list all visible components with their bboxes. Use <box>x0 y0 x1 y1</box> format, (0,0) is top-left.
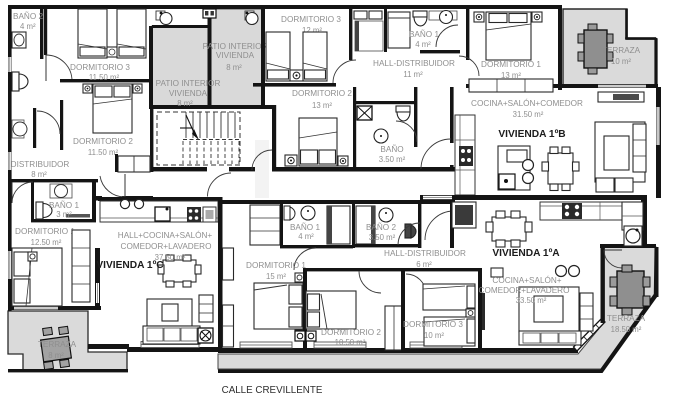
svg-text:3.50 m²: 3.50 m² <box>369 233 396 242</box>
svg-text:BAÑO 2: BAÑO 2 <box>366 222 396 232</box>
svg-text:TERRAZA: TERRAZA <box>38 340 77 349</box>
svg-text:BAÑO 1: BAÑO 1 <box>409 29 439 39</box>
svg-text:TERRAZA: TERRAZA <box>602 46 641 55</box>
svg-text:HALL+COCINA+SALÓN+: HALL+COCINA+SALÓN+ <box>118 230 213 240</box>
svg-text:COCINA+SALÓN+: COCINA+SALÓN+ <box>492 275 561 285</box>
svg-text:DORMITORIO 3: DORMITORIO 3 <box>281 15 341 24</box>
svg-text:11.50 m²: 11.50 m² <box>88 148 119 157</box>
svg-text:HALL-DISTRIBUIDOR: HALL-DISTRIBUIDOR <box>373 59 455 68</box>
svg-text:33.50 m²: 33.50 m² <box>516 296 547 305</box>
svg-text:6 m²: 6 m² <box>416 260 432 269</box>
svg-text:10.50 m²: 10.50 m² <box>335 338 366 347</box>
svg-text:DISTRIBUIDOR: DISTRIBUIDOR <box>11 160 70 169</box>
svg-text:8 m²: 8 m² <box>177 99 193 108</box>
svg-text:8 m²: 8 m² <box>48 351 64 360</box>
svg-text:10 m²: 10 m² <box>424 331 444 340</box>
svg-text:COMEDOR+LAVADERO: COMEDOR+LAVADERO <box>121 242 212 251</box>
svg-text:DORMITORIO 3: DORMITORIO 3 <box>70 63 130 72</box>
svg-text:BAÑO 2: BAÑO 2 <box>13 11 43 21</box>
svg-text:PATIO INTERIOR: PATIO INTERIOR <box>203 42 268 51</box>
svg-text:11.50 m²: 11.50 m² <box>89 73 120 82</box>
svg-text:BAÑO 1: BAÑO 1 <box>49 200 79 210</box>
svg-text:4 m²: 4 m² <box>415 40 431 49</box>
svg-text:COMEDOR+LAVADERO: COMEDOR+LAVADERO <box>479 286 570 295</box>
svg-text:DORMITORIO 1: DORMITORIO 1 <box>15 227 75 236</box>
svg-text:DORMITORIO 3: DORMITORIO 3 <box>403 320 463 329</box>
svg-text:DORMITORIO 2: DORMITORIO 2 <box>292 89 352 98</box>
svg-text:31.50 m²: 31.50 m² <box>513 110 544 119</box>
svg-text:CALLE CREVILLENTE: CALLE CREVILLENTE <box>222 385 323 396</box>
svg-text:4 m²: 4 m² <box>298 232 314 241</box>
svg-text:COCINA+SALÓN+COMEDOR: COCINA+SALÓN+COMEDOR <box>471 98 583 108</box>
svg-text:VIVIENDA: VIVIENDA <box>169 89 208 98</box>
svg-text:TERRAZA: TERRAZA <box>607 314 646 323</box>
svg-text:BAÑO: BAÑO <box>380 144 403 154</box>
svg-text:VIVIENDA: VIVIENDA <box>216 51 255 60</box>
svg-text:PATIO INTERIOR: PATIO INTERIOR <box>156 79 221 88</box>
svg-text:12.50 m²: 12.50 m² <box>31 238 62 247</box>
svg-text:VIVIENDA 1ºB: VIVIENDA 1ºB <box>498 129 565 140</box>
svg-text:18.50 m²: 18.50 m² <box>611 325 642 334</box>
svg-text:13 m²: 13 m² <box>312 101 332 110</box>
svg-text:BAÑO 1: BAÑO 1 <box>290 222 320 232</box>
svg-text:3 m²: 3 m² <box>56 210 72 219</box>
svg-text:VIVIENDA 1ºC: VIVIENDA 1ºC <box>96 260 164 271</box>
svg-text:VIVIENDA 1ºA: VIVIENDA 1ºA <box>492 248 560 259</box>
svg-text:10 m²: 10 m² <box>611 57 631 66</box>
svg-text:DORMITORIO 1: DORMITORIO 1 <box>246 261 306 270</box>
svg-text:DORMITORIO 2: DORMITORIO 2 <box>321 328 381 337</box>
svg-text:DORMITORIO 2: DORMITORIO 2 <box>73 137 133 146</box>
svg-text:15 m²: 15 m² <box>266 272 286 281</box>
svg-text:8 m²: 8 m² <box>226 63 242 72</box>
svg-text:HALL-DISTRIBUIDOR: HALL-DISTRIBUIDOR <box>384 249 466 258</box>
svg-text:8 m²: 8 m² <box>31 170 47 179</box>
svg-text:4 m²: 4 m² <box>20 22 36 31</box>
svg-text:3.50 m²: 3.50 m² <box>379 155 406 164</box>
svg-text:11 m²: 11 m² <box>403 70 423 79</box>
svg-text:DORMITORIO 1: DORMITORIO 1 <box>481 60 541 69</box>
